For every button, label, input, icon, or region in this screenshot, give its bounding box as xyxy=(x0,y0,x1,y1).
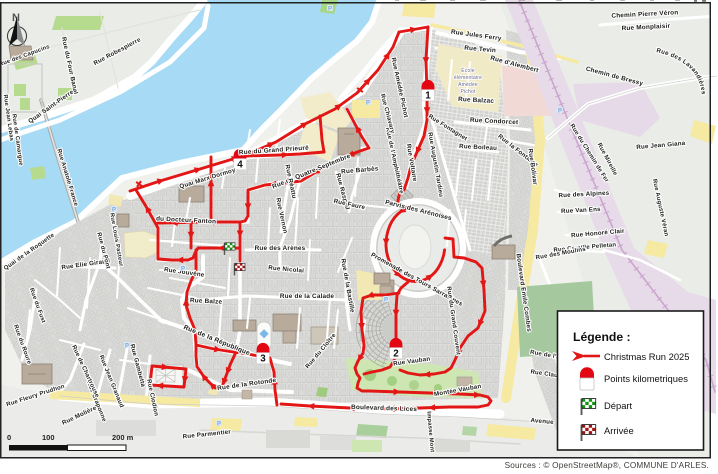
svg-text:Rue des Arènes: Rue des Arènes xyxy=(255,245,306,252)
svg-text:Légende :: Légende : xyxy=(573,330,631,344)
svg-text:2: 2 xyxy=(393,349,399,360)
svg-text:Pichot: Pichot xyxy=(460,89,476,95)
svg-text:élémentaire: élémentaire xyxy=(454,75,482,81)
svg-text:P: P xyxy=(558,108,562,114)
svg-text:P: P xyxy=(112,207,116,213)
svg-text:École: École xyxy=(461,67,475,74)
svg-text:P: P xyxy=(217,421,221,427)
svg-text:P: P xyxy=(366,100,370,106)
svg-text:P: P xyxy=(181,266,185,272)
svg-text:Christmas Run 2025: Christmas Run 2025 xyxy=(604,351,689,362)
svg-text:Arrivée: Arrivée xyxy=(604,425,634,436)
svg-text:100: 100 xyxy=(42,433,55,442)
svg-text:200 m: 200 m xyxy=(112,433,134,442)
svg-text:Points kilometriques: Points kilometriques xyxy=(604,373,688,384)
svg-text:P: P xyxy=(384,297,388,303)
svg-text:P: P xyxy=(328,6,332,12)
svg-text:Sources : © OpenStreetMap®, CO: Sources : © OpenStreetMap®, COMMUNE D'AR… xyxy=(505,461,709,470)
svg-text:Rue de la Calade: Rue de la Calade xyxy=(280,293,335,300)
svg-text:3: 3 xyxy=(260,354,266,365)
svg-text:P: P xyxy=(125,343,129,349)
svg-text:1: 1 xyxy=(425,91,431,102)
svg-text:4: 4 xyxy=(237,160,243,171)
svg-text:Amédée: Amédée xyxy=(458,82,478,88)
svg-text:0: 0 xyxy=(7,433,11,442)
svg-text:Départ: Départ xyxy=(604,400,633,411)
